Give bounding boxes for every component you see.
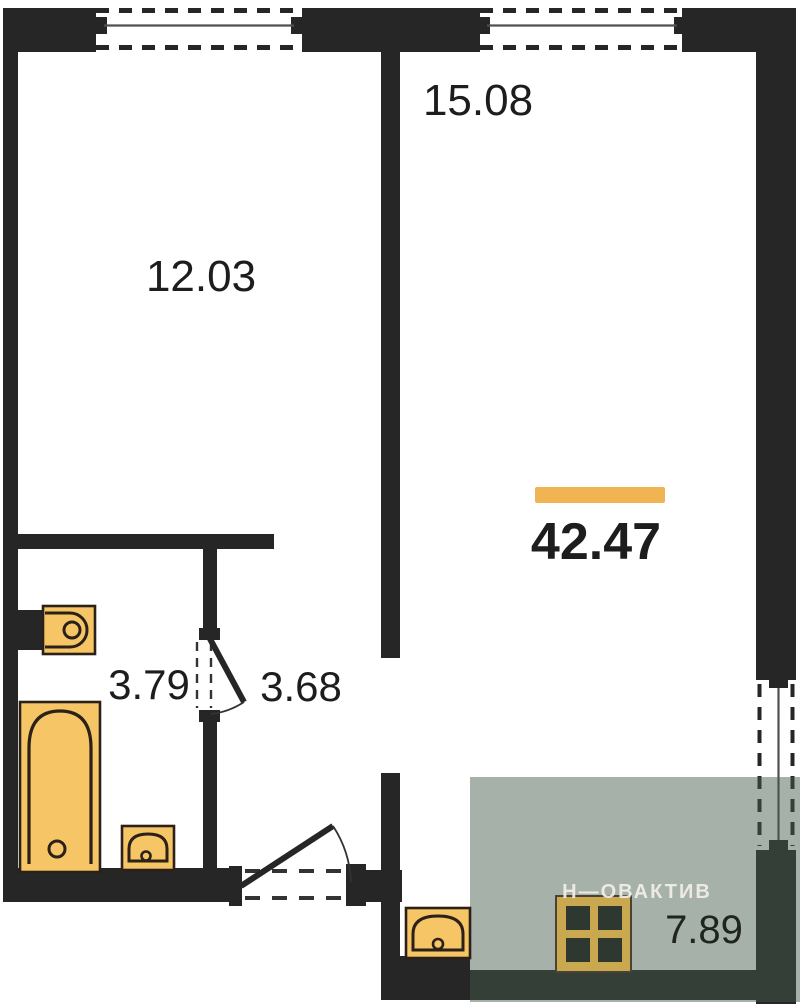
bathroom-door (197, 637, 244, 714)
wall-bath-right-top (203, 549, 217, 634)
stove-icon (556, 896, 631, 972)
bathroom-door-leaf (209, 637, 244, 702)
wall-bath-right-bottom (203, 720, 217, 872)
entry-door-leaf (241, 826, 333, 886)
kitchen-sink-icon (406, 908, 470, 958)
bath-sink-icon (122, 826, 174, 870)
watermark-text: Н—ОВАКТИВ (562, 881, 712, 903)
bathtub-icon (20, 702, 100, 872)
balcony-area-label: 7.89 (665, 908, 743, 952)
wall-right-upper (756, 8, 796, 680)
floor-plan: 12.03 15.08 3.79 3.68 42.47 Н—ОВАКТИВ 7.… (0, 0, 800, 1004)
wall-top-center-block (302, 8, 480, 52)
total-area-accent-bar (535, 487, 665, 503)
wall-top-left-block (3, 8, 96, 52)
hallway-area-label: 3.68 (260, 663, 342, 710)
wall-left (3, 8, 18, 902)
wall-entry-to-center (346, 870, 402, 902)
total-area-label: 42.47 (531, 513, 661, 571)
bath-fixtures (18, 606, 174, 872)
bathroom-area-label: 3.79 (108, 661, 190, 708)
window-top-right (480, 11, 682, 48)
wall-center-upper (381, 52, 400, 658)
toilet-icon (18, 606, 95, 654)
window3-post-top (769, 674, 788, 688)
wall-room-divider (3, 534, 274, 549)
room-left-area-label: 12.03 (146, 252, 256, 301)
entry-door (241, 826, 351, 898)
window-top-left (96, 11, 302, 48)
room-right-area-label: 15.08 (423, 76, 533, 125)
wall-entry-jamb-left (229, 866, 242, 906)
